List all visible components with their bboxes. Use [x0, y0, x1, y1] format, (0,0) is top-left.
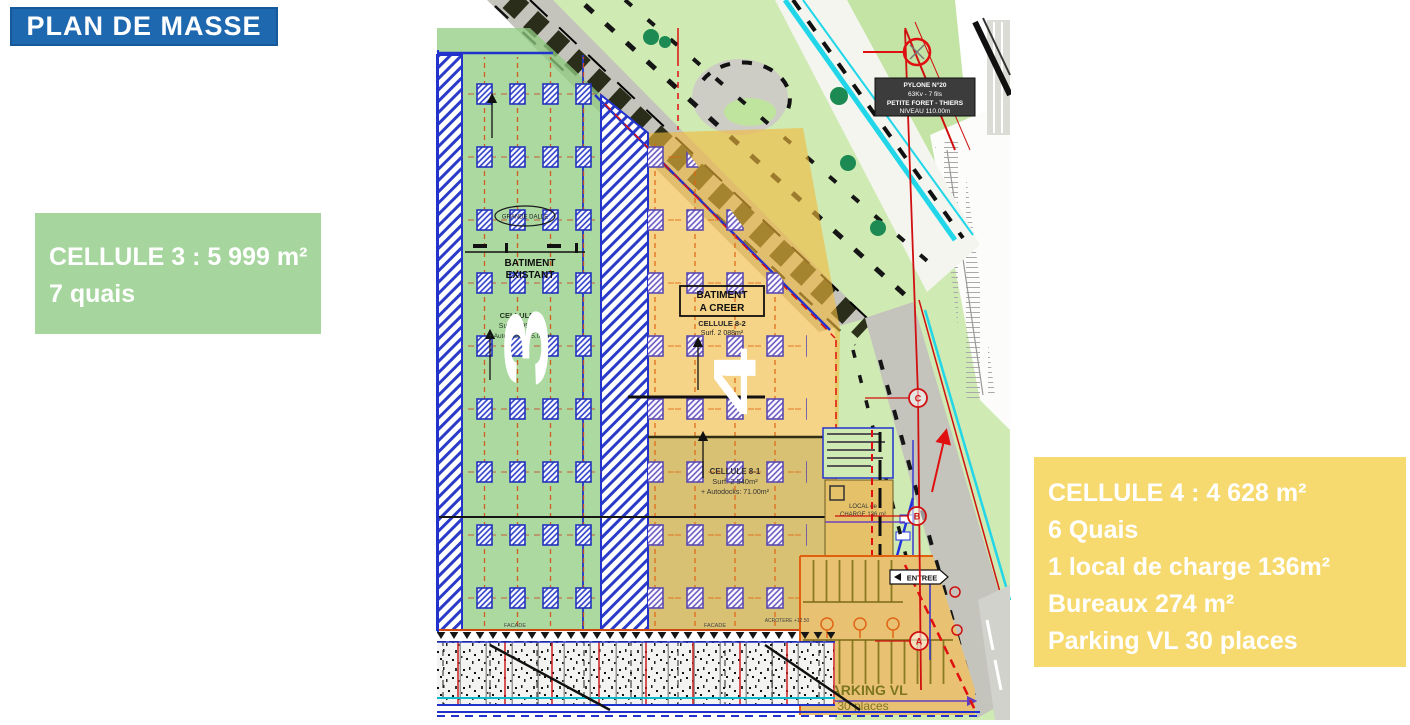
- cell4-line: Parking VL 30 places: [1048, 623, 1406, 660]
- acrotere-text: ACROTERE +12.50: [765, 618, 810, 624]
- batiment-existant-line1: BATIMENT: [505, 258, 556, 269]
- grande-dalle-text: GRANDE DALLE: [502, 215, 548, 221]
- cellule81-name: CELLULE 8-1: [710, 467, 761, 476]
- cell4-line: 1 local de charge 136m²: [1048, 549, 1406, 586]
- cell3-big-numeral: 3: [493, 306, 562, 388]
- survey-marker-c: C: [915, 394, 922, 404]
- survey-marker-b: B: [914, 512, 921, 522]
- cell3-subtitle: 7 quais: [49, 276, 321, 313]
- cellule82-surface: Surf. 2 088m²: [701, 330, 744, 337]
- cell4-line: Bureaux 274 m²: [1048, 586, 1406, 623]
- legend-box: [823, 428, 893, 478]
- batiment-a-creer-line1: BATIMENT: [697, 290, 748, 301]
- cell4-line: 6 Quais: [1048, 512, 1406, 549]
- pylone-label-line1: PYLONE N°20: [903, 81, 946, 89]
- slide-background: PLAN DE MASSE CELLULE 3 : 5 999 m² 7 qua…: [0, 0, 1410, 720]
- facade-left-text: FACADE: [504, 623, 526, 629]
- site-plan-drawing: GRANDE DALLE BATIMENT EXISTANT CELLULE 7…: [435, 0, 1011, 720]
- pylone-label-line3: PETITE FORET - THIERS: [887, 100, 964, 107]
- facade-right-text: FACADE: [704, 623, 726, 629]
- page-title-banner: PLAN DE MASSE: [10, 7, 278, 46]
- entree-text: ENTREE: [907, 574, 937, 583]
- batiment-existant-label: BATIMENT EXISTANT: [505, 258, 556, 281]
- parking-label-line1: PARKING VL: [822, 682, 908, 698]
- cell3-info-box: CELLULE 3 : 5 999 m² 7 quais: [35, 213, 321, 334]
- batiment-a-creer-line2: A CREER: [700, 303, 745, 314]
- hatched-band-left: [437, 55, 462, 630]
- local-charge-line1: LOCAL de: [849, 504, 877, 510]
- cell3-title: CELLULE 3 : 5 999 m²: [49, 239, 321, 276]
- batiment-existant-line2: EXISTANT: [506, 270, 555, 281]
- pylone-label-line4: NIVEAU 110.00m: [900, 108, 951, 115]
- survey-marker-a: A: [916, 637, 923, 647]
- cell4-big-numeral: 4: [702, 347, 769, 416]
- cellule81-autodocks: + Autodocks: 71.00m²: [701, 489, 770, 496]
- cellule82-name: CELLULE 8-2: [698, 319, 746, 328]
- hatched-band-middle: [601, 95, 648, 630]
- pylone-label-line2: 63Kv - 7 fils: [908, 91, 943, 98]
- cell4-info-box: CELLULE 4 : 4 628 m² 6 Quais 1 local de …: [1034, 457, 1406, 667]
- cellule81-surface: Surf. 2 540m²: [712, 477, 758, 486]
- cell4-line: CELLULE 4 : 4 628 m²: [1048, 475, 1406, 512]
- page-title: PLAN DE MASSE: [26, 11, 261, 42]
